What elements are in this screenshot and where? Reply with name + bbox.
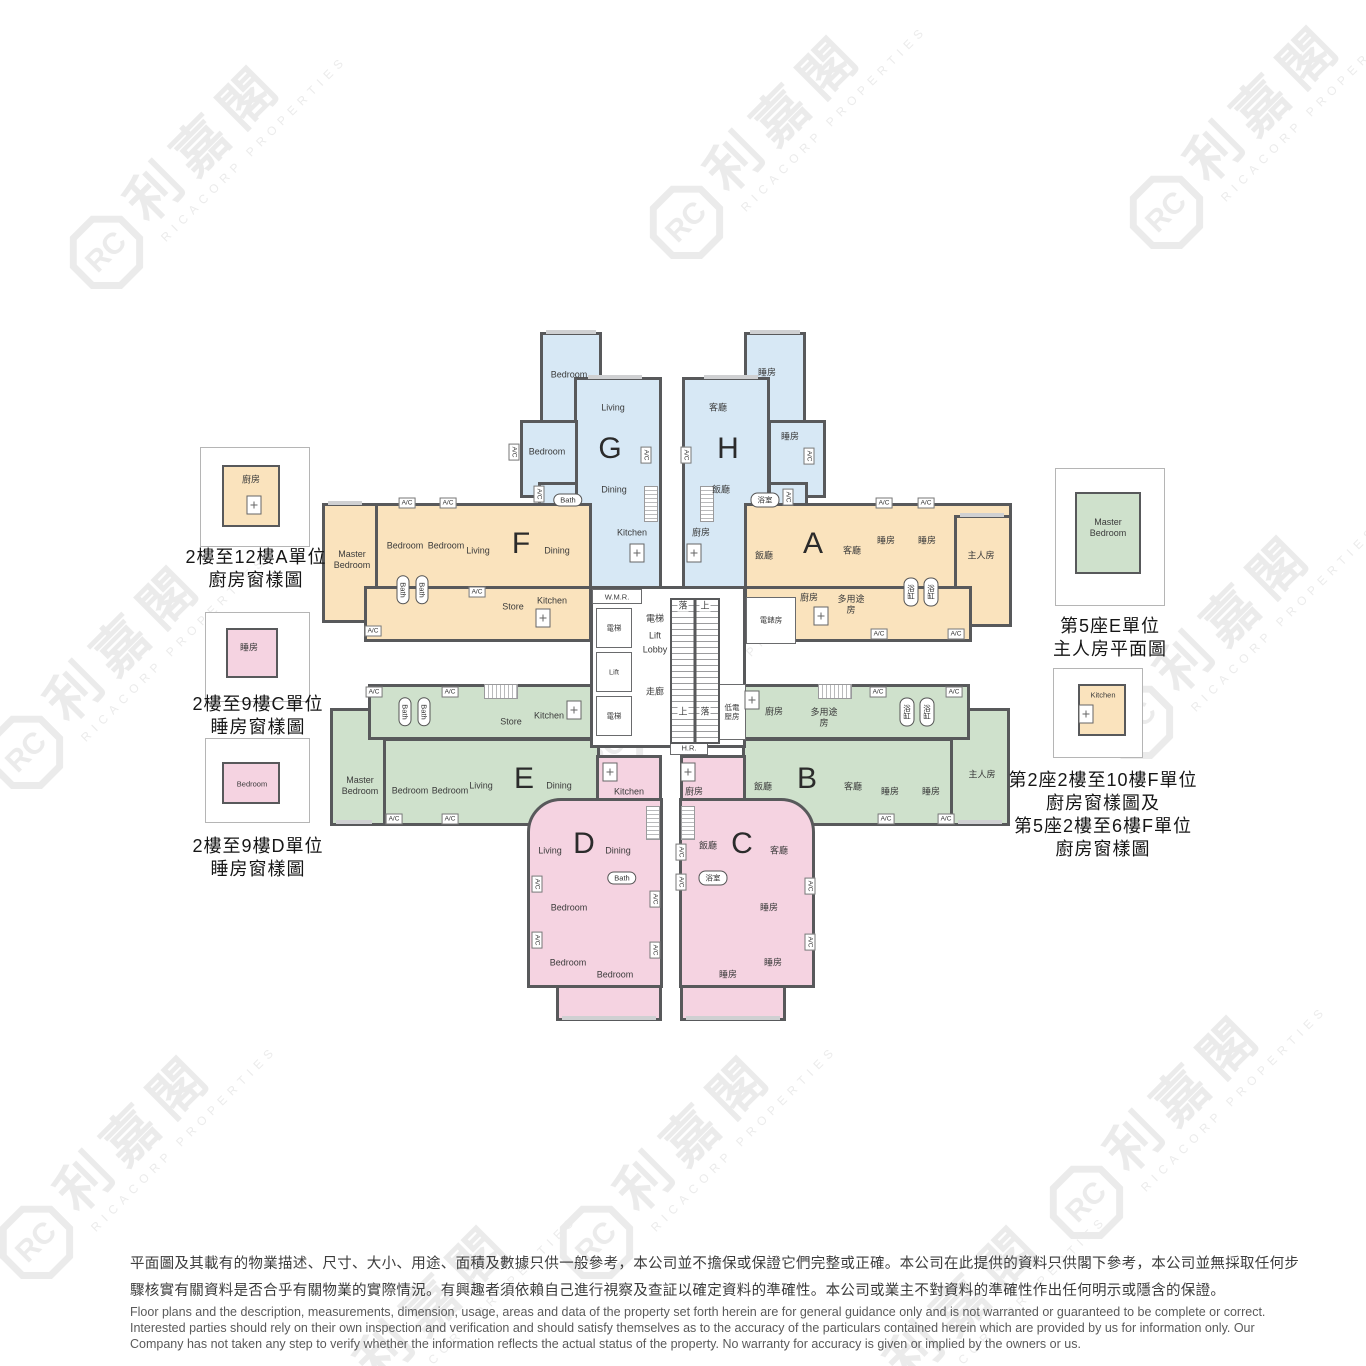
kitchen-sink-icon bbox=[247, 496, 262, 515]
window bbox=[686, 1016, 780, 1020]
room-label-h-bedroom-right: 睡房 bbox=[781, 432, 799, 443]
stair-label-down: 落 bbox=[677, 601, 688, 612]
ac-chip: A/C bbox=[938, 814, 955, 825]
staircase bbox=[670, 598, 720, 744]
hose-reel-label: H.R. bbox=[682, 744, 697, 753]
room-label-d-bedroom3: Bedroom bbox=[597, 970, 634, 981]
unit-b-letter: B bbox=[797, 762, 817, 796]
diagram-f-caption-line4: 廚房窗樣圖 bbox=[1056, 835, 1151, 861]
window bbox=[336, 820, 372, 824]
room-label-e-dining: Dining bbox=[546, 781, 572, 792]
kitchen-sink-icon bbox=[630, 544, 645, 563]
bath-pill-f2: Bath bbox=[416, 575, 429, 604]
room-label-g-bedroom-top: Bedroom bbox=[551, 370, 588, 381]
ac-chip: A/C bbox=[650, 942, 661, 959]
room-label-f-bedroom2: Bedroom bbox=[428, 541, 465, 552]
meter-room-label: 電錶房 bbox=[760, 616, 783, 625]
ac-chip: A/C bbox=[366, 687, 383, 698]
kitchen-sink-icon bbox=[536, 609, 551, 628]
room-label-h-bedroom-top: 睡房 bbox=[758, 368, 776, 379]
disclaimer-zh-line1: 平面圖及其載有的物業描述、尺寸、大小、用途、面積及數據只供一般參考，本公司並不擔… bbox=[130, 1252, 1250, 1273]
diagram-c-bedroom-label: 睡房 bbox=[240, 643, 258, 654]
window bbox=[960, 513, 1004, 517]
room-label-b-dining: 飯廳 bbox=[754, 782, 772, 793]
low-voltage-room-label: 低電壓房 bbox=[723, 703, 741, 721]
ac-chip: A/C bbox=[509, 444, 520, 461]
ac-platform bbox=[644, 486, 658, 522]
diagram-c-caption-line2: 睡房窗樣圖 bbox=[211, 713, 306, 739]
room-label-h-living: 客廳 bbox=[709, 403, 727, 414]
ac-chip: A/C bbox=[442, 814, 459, 825]
ac-chip: A/C bbox=[878, 814, 895, 825]
window bbox=[958, 820, 1002, 824]
diagram-f-kitchen-label: Kitchen bbox=[1090, 691, 1115, 700]
diagram-a-kitchen-label: 廚房 bbox=[242, 475, 260, 486]
kitchen-sink-icon bbox=[745, 691, 760, 710]
room-label-g-kitchen: Kitchen bbox=[617, 528, 647, 539]
ac-chip: A/C bbox=[532, 932, 543, 949]
room-label-b-bed1: 睡房 bbox=[881, 787, 899, 798]
room-label-e-bedroom2: Bedroom bbox=[432, 786, 469, 797]
room-label-c-kitchen: 廚房 bbox=[685, 787, 703, 798]
room-label-g-living: Living bbox=[601, 403, 625, 414]
room-label-b-master: 主人房 bbox=[968, 770, 995, 781]
bath-pill-c: 浴室 bbox=[699, 871, 728, 886]
stair-label-up: 上 bbox=[699, 601, 710, 612]
ac-chip: A/C bbox=[442, 687, 459, 698]
bath-pill-e2: Bath bbox=[418, 697, 431, 726]
unit-d-main bbox=[527, 798, 663, 988]
diagram-d-bedroom-label: Bedroom bbox=[237, 780, 267, 789]
bath-pill-g: Bath bbox=[553, 494, 582, 507]
kitchen-sink-icon bbox=[567, 701, 582, 720]
bathtub-pill-a1: 浴缸 bbox=[904, 578, 919, 607]
room-label-d-kitchen: Kitchen bbox=[614, 787, 644, 798]
room-label-c-bed3: 睡房 bbox=[719, 970, 737, 981]
ac-chip: A/C bbox=[681, 447, 692, 464]
lift-2-label: Lift bbox=[609, 668, 619, 677]
window bbox=[562, 1016, 656, 1020]
bath-pill-d: Bath bbox=[607, 872, 636, 885]
room-label-f-living: Living bbox=[466, 546, 490, 557]
room-label-e-master: Master Bedroom bbox=[336, 775, 384, 797]
window bbox=[750, 330, 800, 334]
room-label-d-living: Living bbox=[538, 846, 562, 857]
ac-platform bbox=[484, 684, 518, 699]
ac-chip: A/C bbox=[365, 626, 382, 637]
stair-label-down: 落 bbox=[699, 707, 710, 718]
room-label-f-store: Store bbox=[502, 602, 524, 613]
ac-chip: A/C bbox=[946, 687, 963, 698]
unit-e-letter: E bbox=[514, 762, 534, 796]
diagram-e-master-label: Master Bedroom bbox=[1082, 517, 1134, 539]
ac-chip: A/C bbox=[399, 498, 416, 509]
room-label-a-bed1: 睡房 bbox=[877, 536, 895, 547]
room-label-e-kitchen: Kitchen bbox=[534, 711, 564, 722]
room-label-c-living: 客廳 bbox=[770, 846, 788, 857]
bath-pill-e1: Bath bbox=[399, 697, 412, 726]
window bbox=[328, 501, 362, 505]
ac-chip: A/C bbox=[641, 447, 652, 464]
ac-chip: A/C bbox=[918, 498, 935, 509]
room-label-d-dining: Dining bbox=[605, 846, 631, 857]
lobby-label-lift: Lift bbox=[649, 631, 661, 642]
disclaimer-en-line2: Interested parties should rely on their … bbox=[130, 1321, 1250, 1335]
ac-platform bbox=[818, 684, 852, 699]
room-label-f-dining: Dining bbox=[544, 546, 570, 557]
ac-chip: A/C bbox=[532, 876, 543, 893]
disclaimer-en-line3: Company has not taken any step to verify… bbox=[130, 1337, 1250, 1351]
ac-chip: A/C bbox=[783, 489, 794, 506]
room-label-f-master: Master Bedroom bbox=[328, 549, 376, 571]
lobby-label-zh: 電梯 bbox=[646, 614, 664, 625]
window bbox=[546, 330, 596, 334]
ac-chip: A/C bbox=[440, 498, 457, 509]
kitchen-sink-icon bbox=[814, 607, 829, 626]
room-label-d-bedroom2: Bedroom bbox=[550, 958, 587, 969]
room-label-b-bed2: 睡房 bbox=[922, 787, 940, 798]
kitchen-sink-icon bbox=[1079, 705, 1094, 724]
corridor-label: 走廊 bbox=[646, 687, 664, 698]
water-meter-room-label: W.M.R. bbox=[605, 593, 630, 602]
diagram-e-caption-line2: 主人房平面圖 bbox=[1053, 635, 1167, 661]
room-label-c-bed2: 睡房 bbox=[764, 958, 782, 969]
disclaimer-zh-line2: 驟核實有關資料是否合乎有關物業的實際情況。有興趣者須依賴自己進行視察及查証以確定… bbox=[130, 1279, 1250, 1300]
bath-pill-f1: Bath bbox=[397, 575, 410, 604]
room-label-a-master: 主人房 bbox=[967, 551, 994, 562]
lift-3-label: 電梯 bbox=[607, 712, 622, 721]
bathtub-pill-a2: 浴缸 bbox=[924, 578, 939, 607]
window bbox=[588, 375, 642, 379]
floorplan-page: RC利嘉閣RICACORP PROPERTIES RC利嘉閣RICACORP P… bbox=[0, 0, 1366, 1366]
room-label-g-bedroom-left: Bedroom bbox=[529, 447, 566, 458]
ac-platform bbox=[681, 806, 695, 840]
room-label-a-dining: 飯廳 bbox=[755, 551, 773, 562]
unit-c-letter: C bbox=[731, 827, 753, 861]
kitchen-sink-icon bbox=[681, 763, 696, 782]
bath-pill-h: 浴室 bbox=[751, 493, 780, 508]
ac-chip: A/C bbox=[469, 587, 486, 598]
kitchen-sink-icon bbox=[687, 544, 702, 563]
ac-chip: A/C bbox=[805, 934, 816, 951]
room-label-e-store: Store bbox=[500, 717, 522, 728]
ac-chip: A/C bbox=[805, 878, 816, 895]
ac-chip: A/C bbox=[676, 844, 687, 861]
disclaimer-en-line1: Floor plans and the description, measure… bbox=[130, 1305, 1250, 1319]
room-label-c-dining: 飯廳 bbox=[699, 841, 717, 852]
room-label-b-multi: 多用途房 bbox=[809, 707, 839, 729]
room-label-b-living: 客廳 bbox=[844, 782, 862, 793]
room-label-b-kitchen: 廚房 bbox=[765, 707, 783, 718]
room-label-c-bed1: 睡房 bbox=[760, 903, 778, 914]
ac-chip: A/C bbox=[870, 687, 887, 698]
diagram-d-caption-line2: 睡房窗樣圖 bbox=[211, 855, 306, 881]
room-label-e-living: Living bbox=[469, 781, 493, 792]
room-label-f-kitchen: Kitchen bbox=[537, 596, 567, 607]
ac-chip: A/C bbox=[386, 814, 403, 825]
unit-f-letter: F bbox=[512, 527, 530, 561]
diagram-a-caption-line2: 廚房窗樣圖 bbox=[209, 566, 304, 592]
ac-chip: A/C bbox=[948, 629, 965, 640]
lobby-label-lobby: Lobby bbox=[643, 645, 668, 656]
ac-chip: A/C bbox=[876, 498, 893, 509]
ac-chip: A/C bbox=[871, 629, 888, 640]
ac-chip: A/C bbox=[650, 891, 661, 908]
room-label-e-bedroom1: Bedroom bbox=[392, 786, 429, 797]
lift-1-label: 電梯 bbox=[607, 624, 622, 633]
unit-h-letter: H bbox=[717, 432, 739, 466]
room-label-h-dining: 飯廳 bbox=[712, 485, 730, 496]
stair-divider bbox=[694, 600, 697, 742]
room-label-a-living: 客廳 bbox=[843, 546, 861, 557]
unit-d-letter: D bbox=[573, 827, 595, 861]
ac-chip: A/C bbox=[676, 874, 687, 891]
stair-label-up: 上 bbox=[677, 707, 688, 718]
room-label-d-bedroom1: Bedroom bbox=[551, 903, 588, 914]
room-label-a-bed2: 睡房 bbox=[918, 536, 936, 547]
room-label-a-multi: 多用途房 bbox=[836, 594, 866, 616]
bathtub-pill-b1: 浴缸 bbox=[900, 698, 915, 727]
ac-chip: A/C bbox=[534, 486, 545, 503]
kitchen-sink-icon bbox=[603, 763, 618, 782]
bathtub-pill-b2: 浴缸 bbox=[920, 698, 935, 727]
room-label-f-bedroom1: Bedroom bbox=[387, 541, 424, 552]
ac-platform bbox=[646, 806, 660, 840]
room-label-a-kitchen: 廚房 bbox=[800, 593, 818, 604]
window bbox=[704, 375, 758, 379]
unit-g-letter: G bbox=[598, 432, 621, 466]
room-label-g-dining: Dining bbox=[601, 485, 627, 496]
ac-chip: A/C bbox=[804, 448, 815, 465]
unit-a-letter: A bbox=[803, 527, 823, 561]
room-label-h-kitchen: 廚房 bbox=[692, 528, 710, 539]
